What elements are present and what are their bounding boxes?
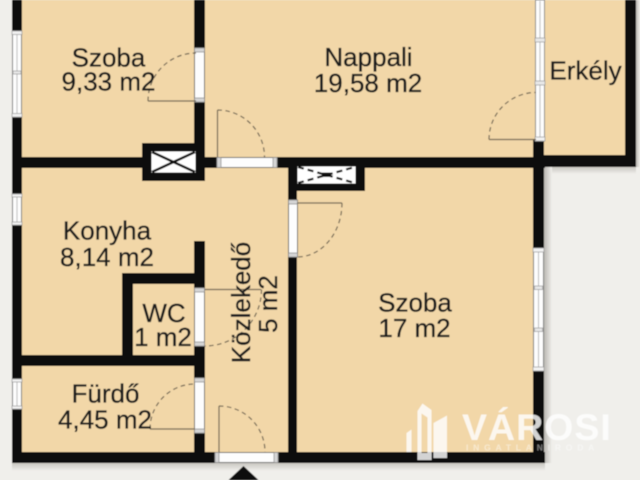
svg-text:Erkély: Erkély	[549, 56, 621, 86]
svg-text:19,58 m2: 19,58 m2	[314, 68, 422, 98]
svg-text:5 m2: 5 m2	[253, 275, 283, 333]
svg-text:8,14 m2: 8,14 m2	[60, 242, 154, 272]
svg-text:Közlekedő: Közlekedő	[226, 242, 256, 363]
svg-text:17 m2: 17 m2	[378, 313, 450, 343]
svg-text:Konyha: Konyha	[63, 216, 152, 246]
svg-text:INGATLANIRODA: INGATLANIRODA	[466, 443, 599, 453]
svg-text:1 m2: 1 m2	[134, 322, 192, 352]
svg-text:4,45 m2: 4,45 m2	[58, 405, 152, 435]
svg-text:9,33 m2: 9,33 m2	[62, 67, 156, 97]
